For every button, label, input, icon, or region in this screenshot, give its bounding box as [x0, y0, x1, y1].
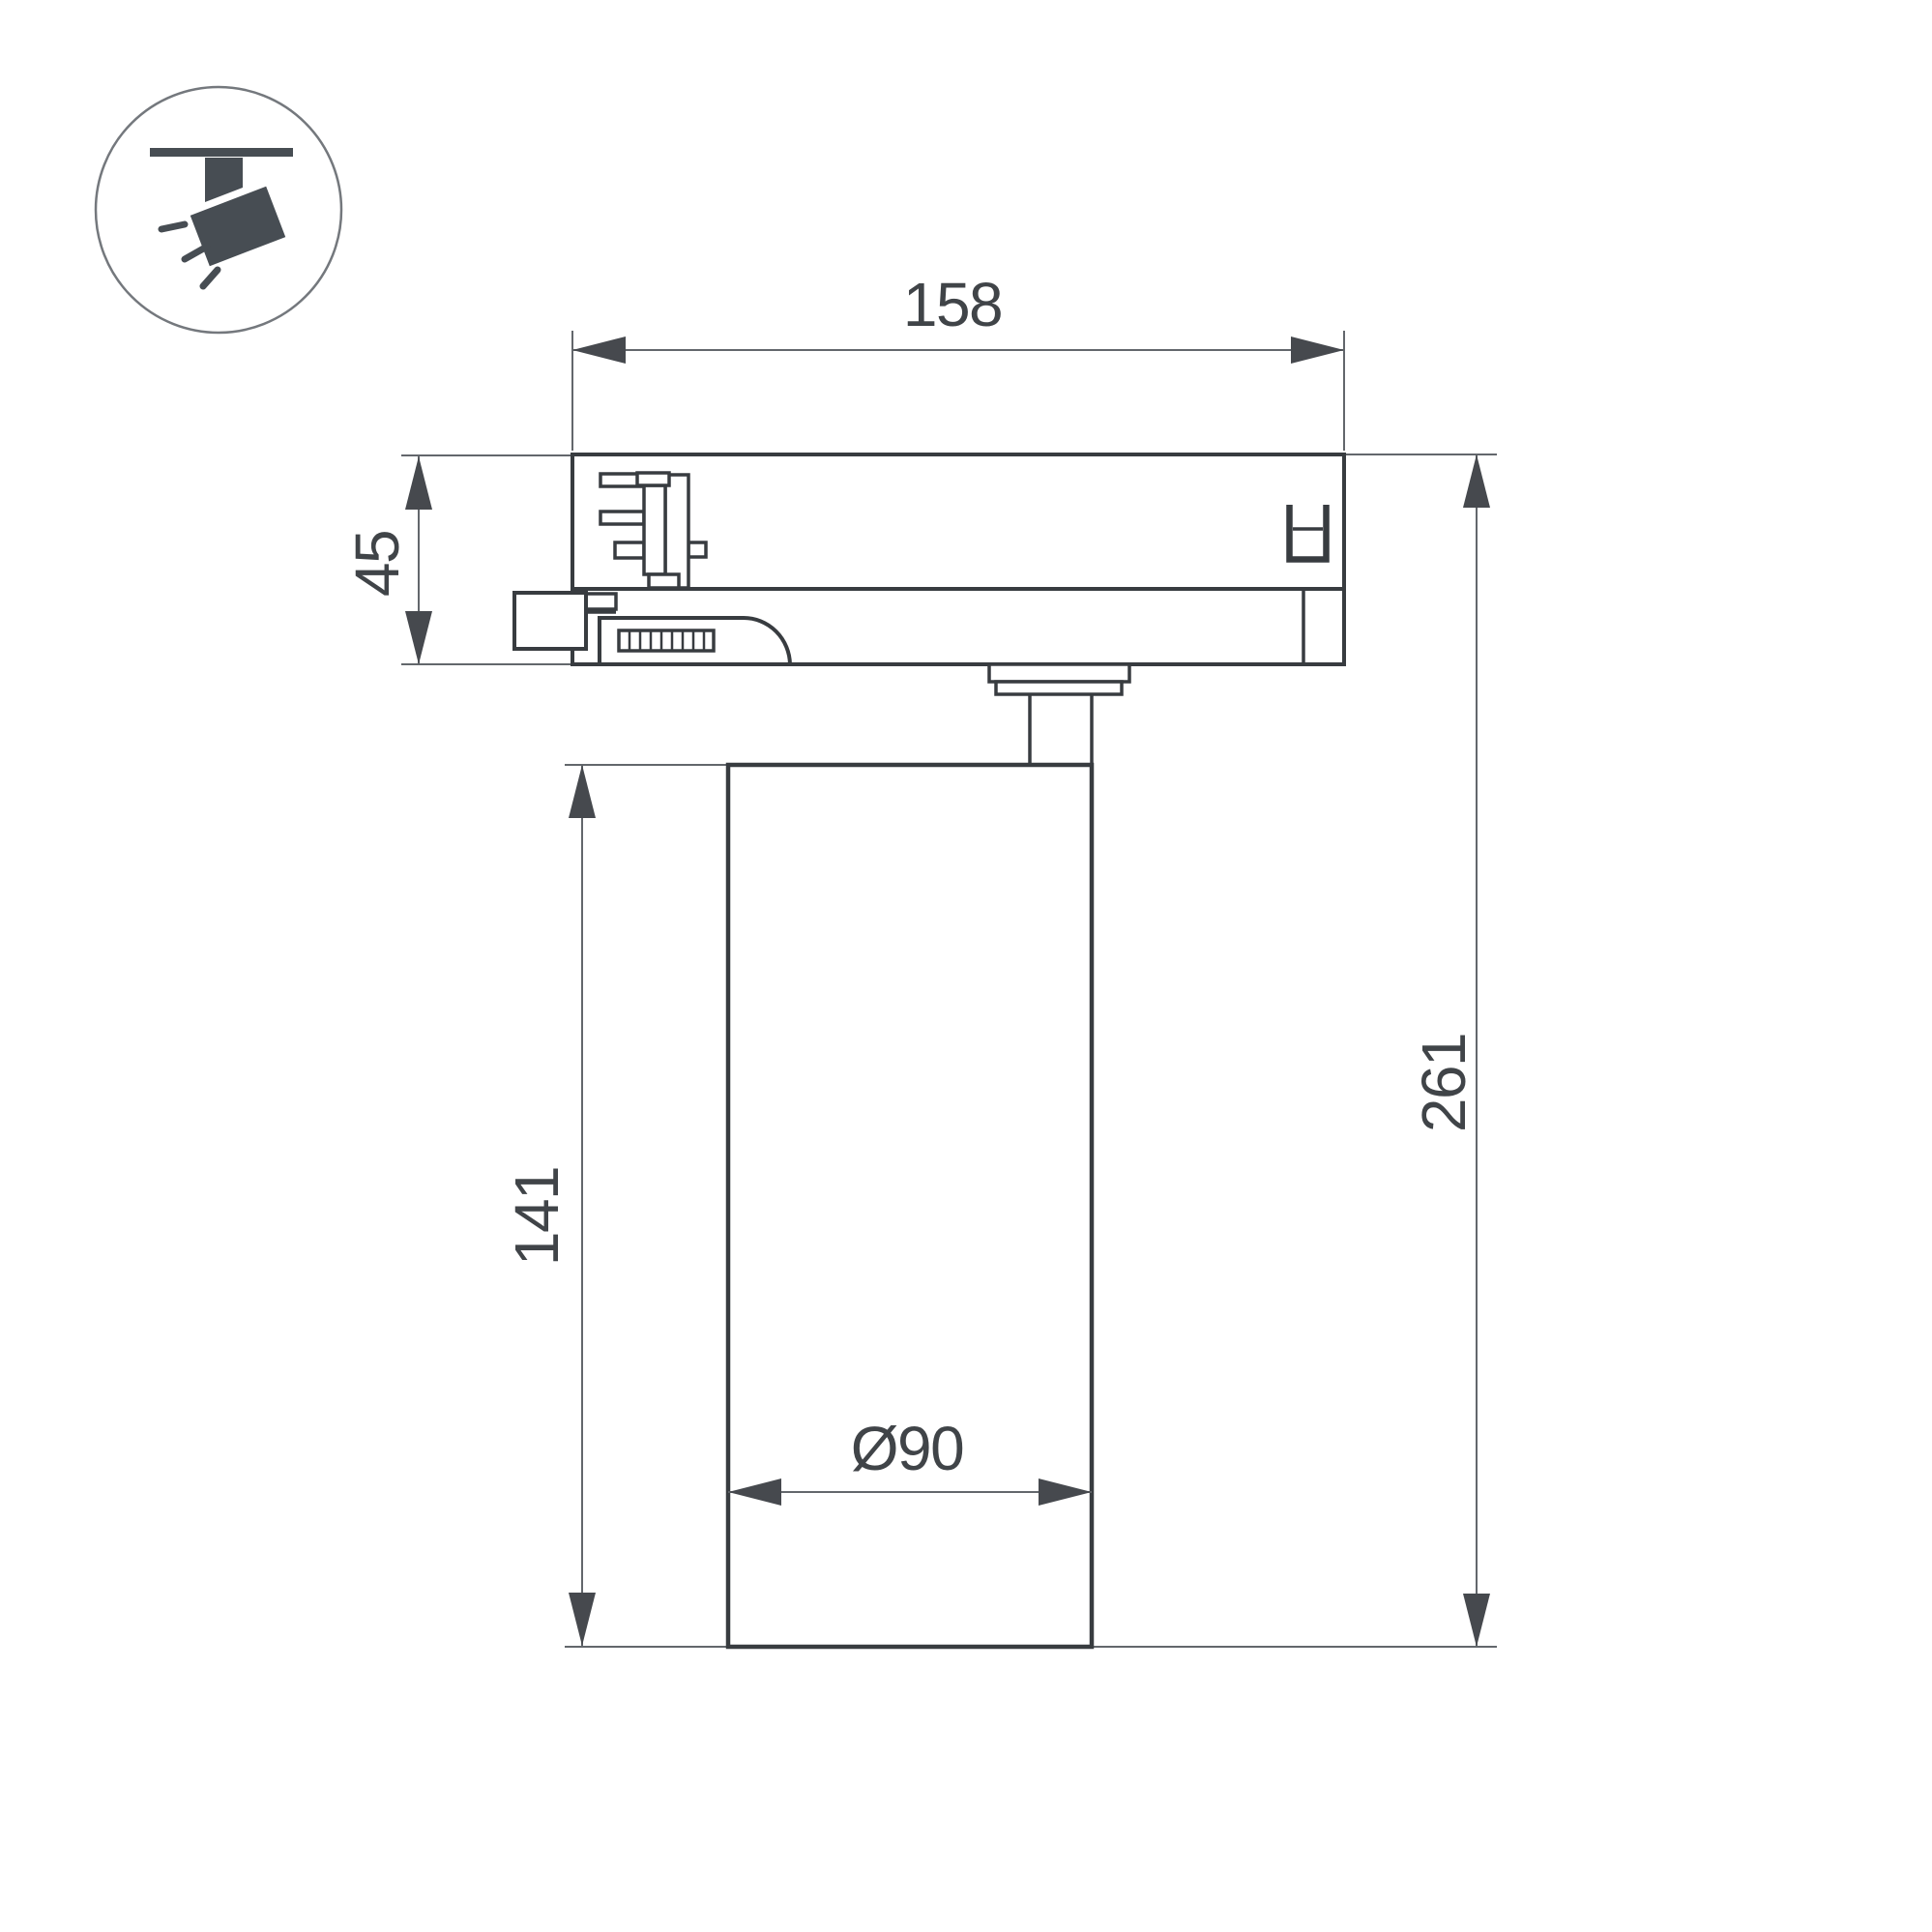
lever-body [600, 618, 790, 664]
dimension-overall-height-label: 261 [1409, 1034, 1478, 1132]
dimension-body-height-label: 141 [502, 1167, 571, 1266]
arrow-left-icon [572, 337, 626, 364]
arrow-up-icon [1463, 454, 1490, 508]
arrow-up-icon [569, 765, 596, 818]
arrow-down-icon [1463, 1594, 1490, 1647]
technical-drawing-canvas: 158 45 141 261 Ø90 [0, 0, 1932, 1932]
lamp-body [728, 765, 1092, 1647]
joint-step-2 [996, 682, 1122, 694]
dimension-adapter-height: 45 [342, 456, 432, 664]
dimension-diameter-label: Ø90 [851, 1414, 963, 1483]
dimension-overall-height: 261 [1409, 454, 1490, 1647]
spotlight-icon [96, 87, 341, 333]
arrow-down-icon [405, 611, 432, 664]
dimension-adapter-height-label: 45 [342, 531, 412, 597]
arrow-right-icon [1291, 337, 1344, 364]
joint-step-1 [989, 664, 1129, 682]
swivel-joint [989, 664, 1129, 765]
latch-step [586, 594, 616, 609]
drawing-svg: 158 45 141 261 Ø90 [0, 0, 1932, 1932]
dimension-width-label: 158 [903, 270, 1002, 339]
arrow-down-icon [569, 1593, 596, 1646]
dimension-width: 158 [572, 270, 1344, 364]
track-adapter [514, 454, 1344, 765]
arrow-up-icon [405, 456, 432, 510]
icon-track-bar [150, 148, 293, 157]
dimension-body-height: 141 [502, 765, 596, 1646]
icon-light-ray-1 [161, 224, 185, 229]
latch-knob [514, 593, 586, 649]
